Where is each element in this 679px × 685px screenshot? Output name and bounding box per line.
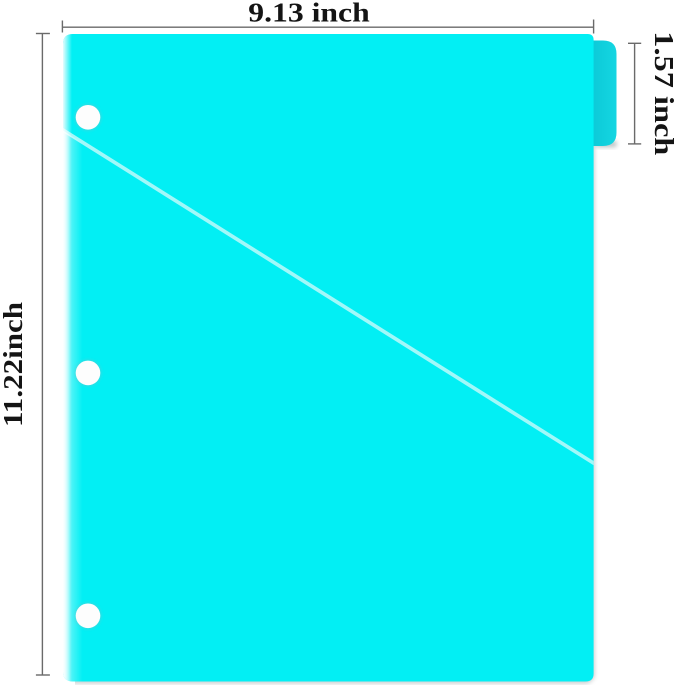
svg-text:11.22inch: 11.22inch — [0, 302, 28, 427]
svg-text:1.57 inch: 1.57 inch — [649, 31, 679, 155]
svg-text:9.13 inch: 9.13 inch — [248, 0, 370, 28]
